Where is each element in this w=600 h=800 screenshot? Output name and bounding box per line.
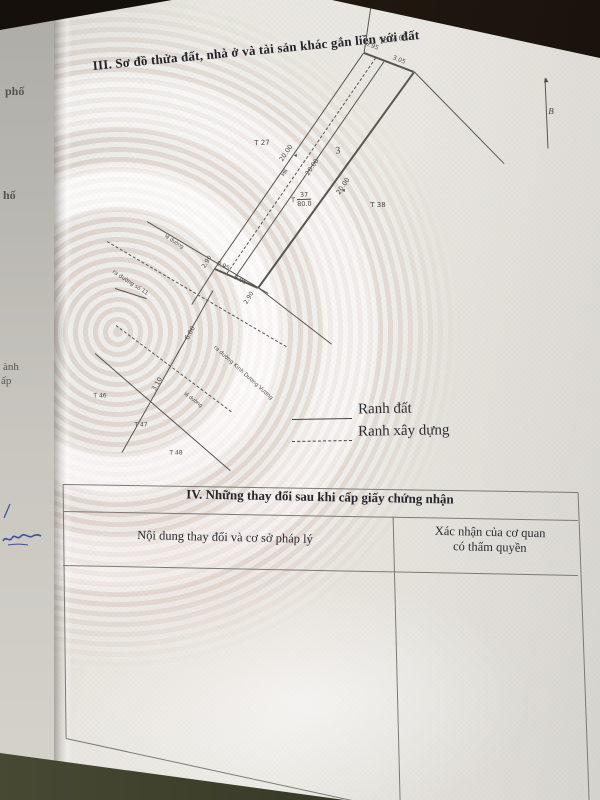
diagram-line	[227, 57, 377, 274]
diagram-label: 6.00	[183, 325, 197, 342]
legend-dashed-label: Ranh xây dựng	[358, 422, 450, 441]
diagram-label: 3	[334, 145, 342, 157]
diagram-layer: Tờ số 68.0.953.05T 2720.0020.0020.00M63T…	[0, 0, 600, 800]
diagram-line	[257, 71, 414, 288]
diagram-line	[63, 511, 578, 521]
diagram-line	[214, 52, 364, 269]
diagram-label: T 27	[254, 139, 270, 148]
diagram-label: ▲	[544, 76, 549, 83]
table-col2-header: Xác nhận của cơ quan có thẩm quyền	[400, 523, 581, 557]
diagram-label: 20.00	[303, 157, 320, 177]
diagram-line	[414, 71, 505, 164]
diagram-label: T 47	[134, 422, 147, 429]
diagram-label: ra đường Kinh Dương Vương	[212, 345, 274, 401]
plot-number-area-label: T 37 80.0	[291, 192, 312, 208]
diagram-label: T 46	[93, 393, 106, 400]
diagram-label: T 38	[370, 201, 385, 209]
plot-area: 80.0	[297, 199, 312, 208]
diagram-label: B	[548, 106, 554, 116]
diagram-line	[392, 517, 400, 800]
diagram-line	[292, 418, 352, 420]
diagram-label: 0.95	[364, 40, 379, 51]
diagram-label: 2.90	[200, 254, 213, 269]
diagram-line	[63, 565, 578, 576]
legend-solid-label: Ranh đất	[358, 401, 412, 419]
diagram-label: 20.00	[277, 143, 294, 163]
diagram-label: 3.05	[232, 274, 247, 286]
diagram-label: 3.10	[150, 376, 164, 393]
diagram-label: 2.90	[242, 290, 255, 305]
diagram-line	[62, 485, 66, 739]
diagram-label: Tờ số 68.	[379, 32, 410, 46]
diagram-line	[292, 440, 352, 442]
diagram-label: lề đường	[182, 391, 203, 409]
plot-label-prefix: T	[291, 196, 295, 204]
diagram-line	[95, 353, 231, 471]
photographed-certificate-page: phố hố ành ấp III. Sơ đồ thửa đất, nhà ở…	[0, 0, 600, 800]
diagram-label: T 48	[169, 450, 182, 457]
diagram-line	[116, 325, 232, 412]
